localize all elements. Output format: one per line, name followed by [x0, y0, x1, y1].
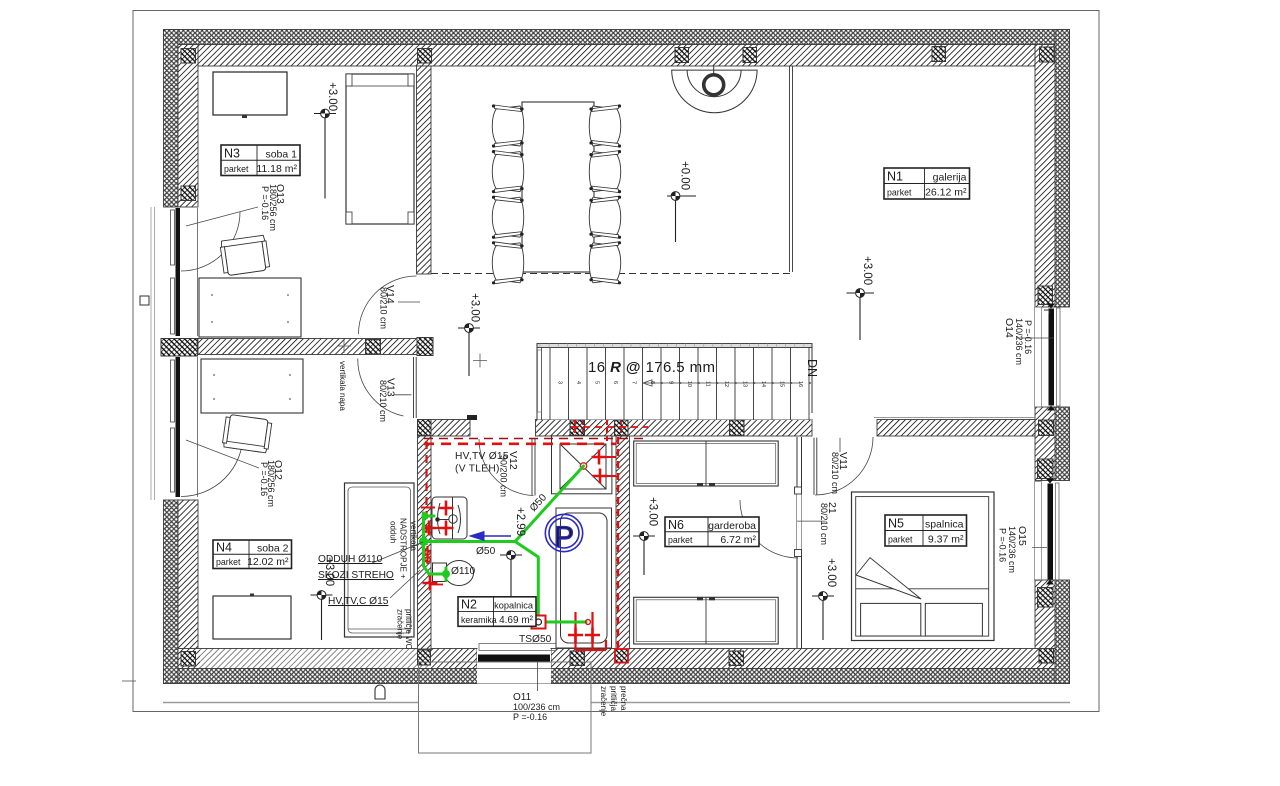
svg-text:P =-0.16: P =-0.16: [1023, 320, 1033, 354]
svg-text:pritličje WC: pritličje WC: [404, 609, 413, 650]
svg-text:ODDUH Ø110: ODDUH Ø110: [318, 554, 383, 565]
svg-text:HV,TV Ø15: HV,TV Ø15: [455, 451, 509, 462]
svg-text:80/210 cm: 80/210 cm: [379, 287, 389, 329]
svg-text:+0.00: +0.00: [679, 161, 691, 190]
svg-text:16: 16: [797, 381, 803, 387]
svg-text:prečna: prečna: [619, 686, 628, 711]
svg-text:zračenje: zračenje: [396, 609, 405, 640]
svg-text:80/210 cm: 80/210 cm: [378, 380, 388, 422]
svg-text:9: 9: [668, 381, 674, 384]
svg-text:spalnica: spalnica: [925, 519, 964, 531]
svg-text:parket: parket: [887, 188, 912, 198]
svg-text:+3.00: +3.00: [861, 256, 873, 285]
svg-text:galerija: galerija: [933, 172, 967, 184]
svg-text:vertikala: vertikala: [409, 521, 418, 551]
svg-text:140/236 cm: 140/236 cm: [1014, 318, 1024, 365]
svg-text:N1: N1: [887, 170, 903, 184]
svg-text:13: 13: [742, 381, 748, 387]
svg-text:16 R @ 176.5 mm: 16 R @ 176.5 mm: [588, 359, 715, 376]
svg-text:keramika: keramika: [461, 615, 497, 625]
svg-text:6: 6: [612, 381, 618, 384]
svg-text:12: 12: [723, 381, 729, 387]
svg-text:(V TLEH): (V TLEH): [455, 464, 500, 475]
svg-text:5: 5: [594, 381, 600, 384]
svg-text:15: 15: [779, 381, 785, 387]
svg-text:80/210 cm: 80/210 cm: [830, 452, 840, 494]
svg-text:garderoba: garderoba: [708, 520, 756, 532]
svg-text:zračenje: zračenje: [599, 686, 608, 717]
svg-text:8: 8: [649, 381, 655, 384]
svg-text:N6: N6: [668, 518, 684, 532]
svg-text:10: 10: [686, 381, 692, 387]
svg-text:+3.00: +3.00: [647, 497, 659, 526]
svg-text:Ø50: Ø50: [476, 546, 496, 557]
svg-text:+3.00: +3.00: [825, 558, 837, 587]
svg-text:6.72 m²: 6.72 m²: [720, 534, 756, 546]
svg-text:+3.00: +3.00: [469, 293, 481, 322]
svg-text:11: 11: [705, 381, 711, 387]
svg-text:P =-0.16: P =-0.16: [513, 712, 547, 722]
svg-text:11.18 m²: 11.18 m²: [256, 163, 297, 175]
svg-text:odduh: odduh: [389, 521, 398, 543]
svg-text:4.69 m²: 4.69 m²: [499, 615, 534, 626]
svg-text:kopalnica: kopalnica: [494, 601, 534, 611]
svg-text:TSØ50: TSØ50: [519, 634, 552, 645]
svg-text:26.12 m²: 26.12 m²: [925, 187, 967, 199]
svg-text:vertikala napa: vertikala napa: [338, 361, 347, 411]
svg-text:N5: N5: [888, 517, 904, 531]
svg-text:P =-0.16: P =-0.16: [259, 462, 269, 496]
svg-text:parket: parket: [888, 535, 913, 545]
svg-text:O14: O14: [1003, 318, 1015, 338]
svg-text:parket: parket: [668, 535, 693, 545]
svg-text:N4: N4: [216, 540, 232, 554]
svg-text:3: 3: [557, 381, 563, 384]
svg-text:+2.99: +2.99: [514, 507, 526, 536]
svg-text:80/210 cm: 80/210 cm: [819, 503, 829, 545]
svg-text:NADSTROPJE +: NADSTROPJE +: [399, 518, 408, 579]
svg-text:4: 4: [575, 381, 581, 384]
svg-text:7: 7: [631, 381, 637, 384]
svg-text:soba 1: soba 1: [265, 148, 297, 160]
svg-text:P =-0.16: P =-0.16: [260, 186, 270, 220]
svg-text:pritličja: pritličja: [609, 686, 618, 711]
svg-text:P =-0.16: P =-0.16: [998, 528, 1008, 562]
svg-text:soba 2: soba 2: [257, 542, 289, 554]
svg-text:N3: N3: [224, 146, 240, 160]
svg-text:12.02 m²: 12.02 m²: [247, 556, 289, 568]
svg-text:9.37 m²: 9.37 m²: [928, 534, 964, 546]
svg-text:parket: parket: [224, 164, 249, 174]
svg-text:DN: DN: [805, 359, 819, 377]
svg-text:N2: N2: [461, 598, 477, 612]
svg-text:Ø110: Ø110: [451, 566, 475, 577]
svg-text:P: P: [554, 521, 574, 554]
svg-text:100/236 cm: 100/236 cm: [513, 702, 560, 712]
svg-text:HV,TV,C Ø15: HV,TV,C Ø15: [328, 596, 389, 607]
svg-text:SKOZI STREHO: SKOZI STREHO: [318, 570, 394, 581]
svg-text:14: 14: [760, 381, 766, 387]
svg-text:140/236 cm: 140/236 cm: [1007, 526, 1017, 573]
svg-text:+3.00: +3.00: [326, 82, 338, 111]
svg-text:parket: parket: [216, 557, 241, 567]
